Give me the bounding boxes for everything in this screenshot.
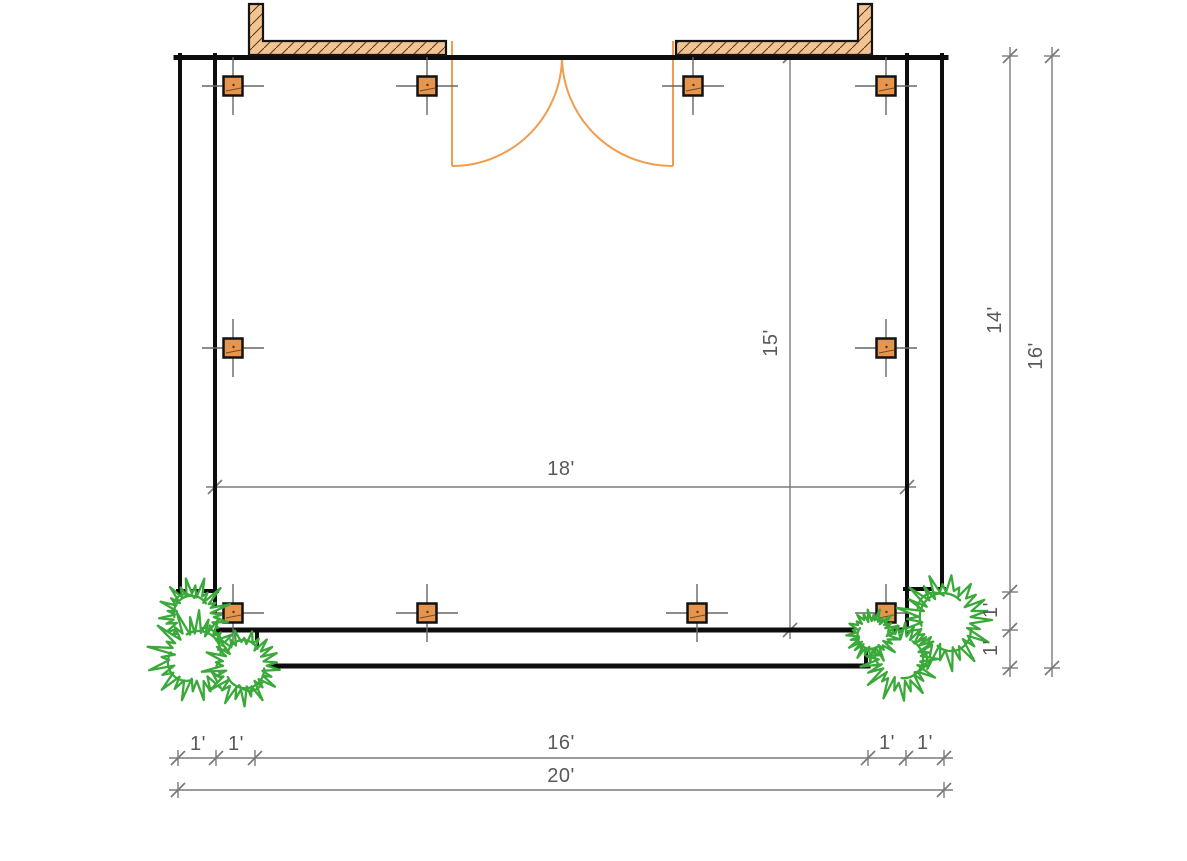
post-center-dot [696,611,698,613]
dim-label-front-overhang-c: 1' [879,733,895,753]
wood-beam[interactable] [676,4,872,55]
post-center-dot [692,84,694,86]
post-center-dot [232,346,234,348]
post-center-dot [232,84,234,86]
dim-label-side-step-b: 1' [981,640,1001,656]
dim-label-front-overhang-a: 1' [190,734,206,754]
overhead-beams[interactable] [249,4,872,55]
post-center-dot [426,611,428,613]
deck-structure[interactable] [176,55,946,666]
dim-label-side-step-a: 1' [981,602,1001,618]
dim-label-side-total: 16' [1026,342,1046,370]
post[interactable] [396,57,458,115]
dim-label-side-depth: 14' [985,306,1005,334]
wood-beam[interactable] [249,4,446,55]
post-center-dot [232,611,234,613]
door-swing-arc [452,56,562,166]
dim-label-interior-width: 18' [547,459,575,479]
dim-label-front-span: 16' [547,733,575,753]
posts[interactable] [202,57,917,642]
dimension-lines [169,47,1060,798]
post[interactable] [662,57,724,115]
dim-label-front-overhang-b: 1' [228,734,244,754]
floor-plan-drawing[interactable] [0,0,1187,861]
post-center-dot [885,84,887,86]
dim-label-front-overhang-d: 1' [917,733,933,753]
post[interactable] [202,57,264,115]
post[interactable] [396,584,458,642]
post[interactable] [666,584,728,642]
dim-label-interior-depth: 15' [761,329,781,357]
post[interactable] [202,319,264,377]
dim-label-front-total: 20' [547,766,575,786]
post-center-dot [885,346,887,348]
post-center-dot [426,84,428,86]
door-swing-arc [562,56,673,166]
design-canvas[interactable]: 18' 15' 14' 1' 1' 16' 1' 1' 16' 1' 1' 20… [0,0,1187,861]
shrubs[interactable] [140,572,992,717]
post-center-dot [885,611,887,613]
